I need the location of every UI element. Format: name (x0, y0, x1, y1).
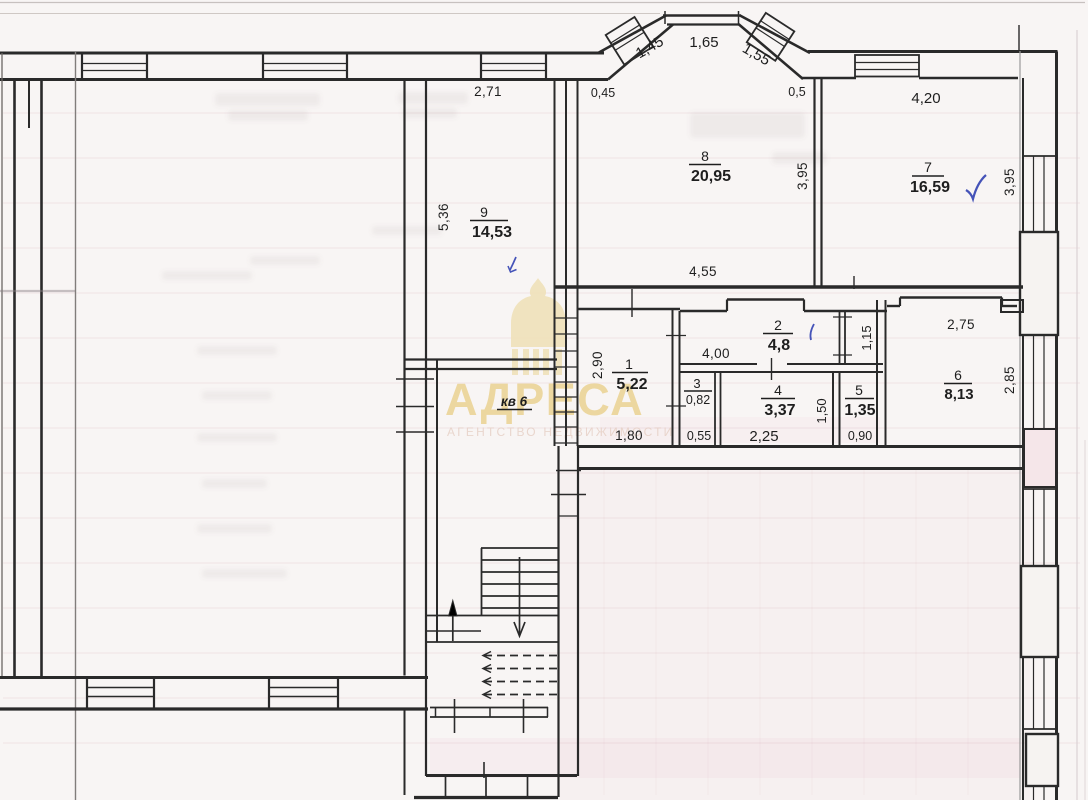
svg-text:4,55: 4,55 (689, 264, 717, 279)
svg-text:9: 9 (480, 204, 488, 220)
svg-text:2,75: 2,75 (947, 317, 975, 332)
svg-text:5,36: 5,36 (436, 203, 451, 231)
svg-text:3: 3 (693, 376, 700, 391)
svg-text:2: 2 (774, 317, 782, 333)
svg-text:7: 7 (924, 159, 932, 175)
svg-text:5: 5 (855, 382, 863, 398)
svg-text:16,59: 16,59 (910, 179, 950, 196)
svg-text:0,82: 0,82 (686, 393, 710, 407)
svg-text:1,65: 1,65 (689, 34, 718, 51)
svg-text:0,45: 0,45 (591, 86, 615, 100)
svg-text:5,22: 5,22 (616, 376, 647, 393)
svg-text:1: 1 (625, 356, 633, 372)
svg-text:1,35: 1,35 (844, 402, 875, 419)
svg-text:3,95: 3,95 (795, 162, 810, 190)
svg-text:3,37: 3,37 (764, 402, 795, 419)
svg-text:1,15: 1,15 (859, 325, 874, 350)
svg-text:2,71: 2,71 (474, 84, 502, 99)
svg-text:1,80: 1,80 (615, 428, 643, 443)
svg-text:4,8: 4,8 (768, 337, 790, 354)
svg-text:1,50: 1,50 (814, 398, 829, 423)
svg-text:0,55: 0,55 (687, 429, 711, 443)
svg-text:4,00: 4,00 (702, 346, 730, 361)
svg-text:0,5: 0,5 (788, 85, 805, 99)
svg-text:2,25: 2,25 (749, 428, 778, 445)
svg-text:0,90: 0,90 (848, 429, 872, 443)
svg-text:14,53: 14,53 (472, 224, 512, 241)
svg-text:АДРЕСА: АДРЕСА (445, 374, 644, 425)
svg-text:4,20: 4,20 (911, 90, 940, 107)
svg-text:2,90: 2,90 (590, 351, 605, 379)
svg-text:3,95: 3,95 (1002, 168, 1017, 196)
svg-text:2,85: 2,85 (1002, 366, 1017, 394)
svg-text:8,13: 8,13 (944, 386, 973, 403)
svg-text:4: 4 (774, 382, 782, 398)
svg-text:6: 6 (954, 367, 962, 383)
svg-text:кв 6: кв 6 (501, 394, 528, 409)
svg-text:8: 8 (701, 148, 709, 164)
svg-text:20,95: 20,95 (691, 168, 731, 185)
